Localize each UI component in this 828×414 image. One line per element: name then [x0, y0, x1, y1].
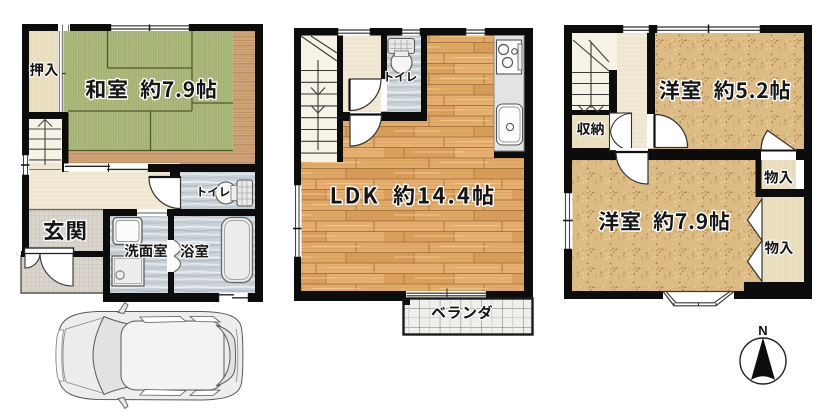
- svg-text:N: N: [758, 323, 767, 338]
